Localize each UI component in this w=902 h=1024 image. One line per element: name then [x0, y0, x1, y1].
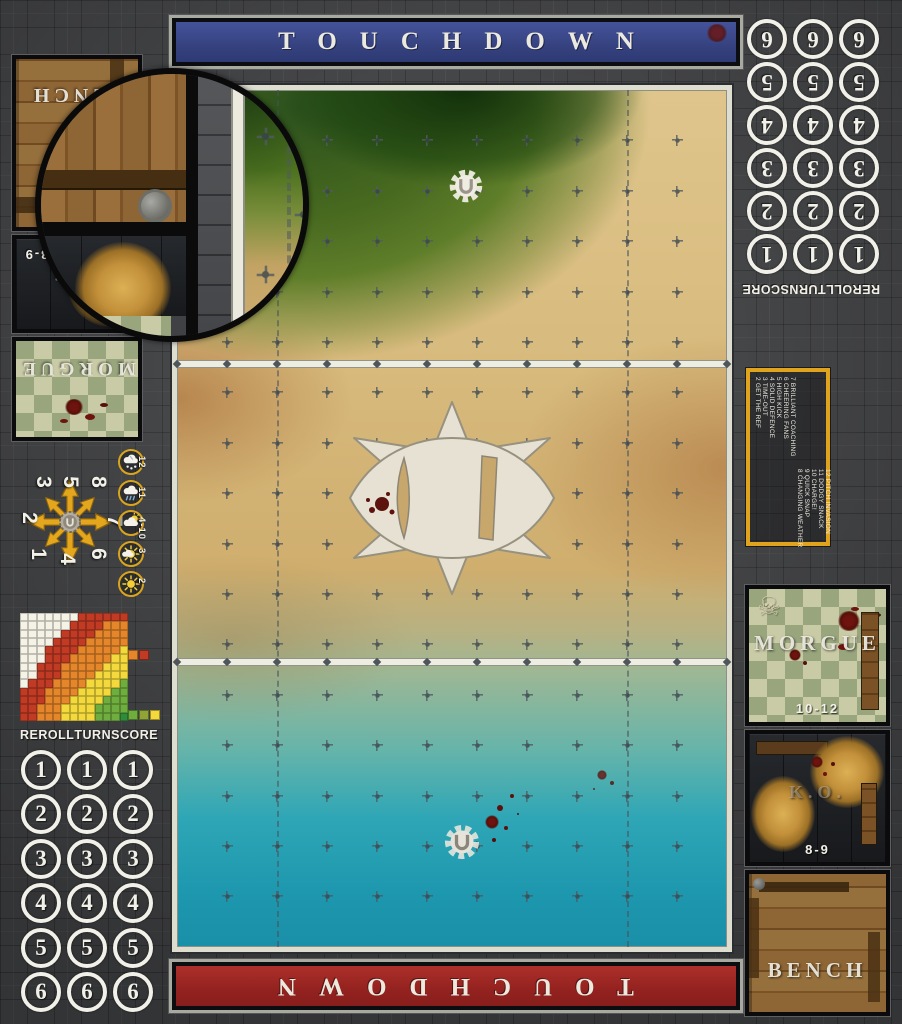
grid-cross-marker — [672, 135, 683, 146]
range-cell — [28, 679, 36, 687]
range-cell — [37, 713, 45, 721]
range-cell — [120, 663, 128, 671]
weather-row: 12 — [118, 449, 144, 475]
grid-cross-marker — [422, 690, 433, 701]
kickoff-entry: 4 SOLID DEFENCE — [768, 377, 775, 537]
line-diamond-marker — [473, 360, 481, 368]
range-cell — [37, 613, 45, 621]
range-cell — [20, 613, 28, 621]
range-cell — [78, 663, 86, 671]
range-cell — [86, 688, 94, 696]
range-cell — [111, 713, 119, 721]
score-track-left: REROLLTURNSCORE 111222333444555666 — [20, 728, 158, 1012]
grid-cross-marker — [372, 891, 383, 902]
kickoff-entry: 9 QUICK SNAP — [803, 377, 810, 537]
grid-cross-marker — [672, 639, 683, 650]
grid-cross-marker — [522, 337, 533, 348]
range-cell — [78, 696, 86, 704]
grid-cross-marker — [422, 791, 433, 802]
grid-cross-marker — [622, 287, 633, 298]
scatter-number: 8 — [86, 472, 110, 492]
range-cell — [111, 621, 119, 629]
track-number-circle: 5 — [67, 928, 107, 968]
track-number-circle: 2 — [839, 191, 879, 231]
range-cell — [53, 613, 61, 621]
grid-cross-marker — [522, 639, 533, 650]
range-cell — [78, 713, 86, 721]
grid-cross-marker — [272, 791, 283, 802]
track-number-circle: 4 — [21, 883, 61, 923]
grid-cross-marker — [372, 337, 383, 348]
kickoff-entry: 12 PITCH INVASION — [824, 377, 831, 537]
line-diamond-marker — [723, 658, 731, 666]
range-cell — [103, 663, 111, 671]
grid-cross-marker — [422, 841, 433, 852]
weather-row: 4-10 — [118, 510, 144, 536]
grid-cross-marker — [322, 791, 333, 802]
pitch-line-lower — [177, 658, 727, 666]
magnified-stone-border — [198, 74, 231, 342]
track-number-circle: 3 — [747, 148, 787, 188]
touchdown-banner-top-label: TOUCHDOWN — [255, 28, 657, 56]
range-cell — [103, 696, 111, 704]
range-cell — [28, 630, 36, 638]
range-cell — [53, 638, 61, 646]
track-number-circle: 1 — [21, 750, 61, 790]
grid-cross-marker — [372, 791, 383, 802]
range-cell — [37, 671, 45, 679]
gear-logo-icon — [440, 820, 484, 864]
range-cell — [28, 638, 36, 646]
range-cell — [111, 696, 119, 704]
range-cell — [95, 654, 103, 662]
weather-row: 3 — [118, 541, 144, 567]
scatter-number: 6 — [86, 544, 110, 564]
skeleton-icon: ☠ — [757, 591, 780, 622]
range-cell — [53, 621, 61, 629]
grid-cross-marker — [422, 891, 433, 902]
range-cell — [20, 704, 28, 712]
grid-cross-marker — [272, 337, 283, 348]
weather-value-label: 4-10 — [136, 517, 147, 540]
grid-cross-marker — [672, 841, 683, 852]
range-cell — [70, 696, 78, 704]
grid-cross-marker — [622, 438, 633, 449]
grid-cross-marker — [472, 287, 483, 298]
range-cell — [28, 713, 36, 721]
score-track-column-label: REROLL — [826, 282, 880, 296]
grid-cross-marker — [322, 337, 333, 348]
line-diamond-marker — [523, 658, 531, 666]
grid-cross-marker — [422, 740, 433, 751]
range-cell — [78, 671, 86, 679]
track-number-circle: 4 — [747, 105, 787, 145]
wide-zone-line-right — [627, 90, 629, 947]
line-diamond-marker — [723, 360, 731, 368]
grid-cross-marker — [672, 539, 683, 550]
range-cell — [28, 654, 36, 662]
range-cell — [20, 654, 28, 662]
range-cell — [95, 688, 103, 696]
grid-cross-marker — [222, 387, 233, 398]
range-cell — [45, 671, 53, 679]
grid-cross-marker — [472, 337, 483, 348]
track-number-circle: 6 — [747, 19, 787, 59]
range-cell — [20, 688, 28, 696]
grid-cross-marker — [222, 639, 233, 650]
grid-cross-marker — [222, 438, 233, 449]
grid-cross-marker — [672, 236, 683, 247]
track-number-circle: 2 — [67, 794, 107, 834]
range-cell — [78, 613, 86, 621]
magnifier-detail-circle — [35, 68, 309, 342]
grid-cross-marker — [622, 791, 633, 802]
range-cell — [95, 621, 103, 629]
range-cell — [78, 704, 86, 712]
range-cell — [28, 696, 36, 704]
range-cell — [53, 704, 61, 712]
grid-cross-marker — [422, 186, 433, 197]
grid-cross-marker — [472, 740, 483, 751]
grid-cross-marker — [372, 740, 383, 751]
range-cell — [45, 688, 53, 696]
touchdown-banner-bottom: TOUCHDOWN — [172, 962, 740, 1010]
score-track-left-grid: 111222333444555666 — [20, 750, 158, 1012]
grid-cross-marker — [372, 287, 383, 298]
score-track-right-grid: 111222333444555666 — [742, 12, 880, 274]
range-cell — [45, 713, 53, 721]
range-cell — [86, 613, 94, 621]
range-cell — [28, 646, 36, 654]
line-diamond-marker — [623, 360, 631, 368]
line-diamond-marker — [273, 658, 281, 666]
grid-cross-marker — [322, 589, 333, 600]
grid-cross-marker — [322, 891, 333, 902]
range-cell — [86, 621, 94, 629]
line-diamond-marker — [573, 360, 581, 368]
range-cell — [95, 663, 103, 671]
score-track-right: REROLLTURNSCORE 111222333444555666 — [742, 12, 880, 296]
grid-cross-marker — [372, 186, 383, 197]
range-cell — [86, 679, 94, 687]
range-cell — [78, 646, 86, 654]
grid-cross-marker — [522, 236, 533, 247]
line-diamond-marker — [173, 360, 181, 368]
ko-label: K.O. — [749, 782, 886, 803]
range-cell — [86, 696, 94, 704]
track-number-circle: 6 — [793, 19, 833, 59]
grid-cross-marker — [522, 690, 533, 701]
score-track-column-label: TURN — [74, 728, 111, 742]
range-cell — [111, 654, 119, 662]
range-cell — [53, 713, 61, 721]
grid-cross-marker — [472, 135, 483, 146]
grid-cross-marker — [322, 287, 333, 298]
grid-cross-marker — [422, 236, 433, 247]
grid-cross-marker — [572, 740, 583, 751]
grid-cross-marker — [272, 438, 283, 449]
weather-row: 2 — [118, 571, 144, 597]
range-cell — [45, 630, 53, 638]
grid-cross-marker — [572, 438, 583, 449]
blood-splatter — [706, 24, 728, 42]
track-number-circle: 1 — [839, 234, 879, 274]
kickoff-entry: 5 HIGH KICK — [775, 377, 782, 537]
scatter-number: 1 — [26, 544, 50, 564]
range-cell — [86, 654, 94, 662]
line-diamond-marker — [373, 658, 381, 666]
range-cell — [53, 654, 61, 662]
kickoff-entry: 11 DODGY SNACK — [817, 377, 824, 537]
legend-swatch — [128, 710, 138, 720]
legend-swatch — [128, 650, 138, 660]
track-number-circle: 5 — [839, 62, 879, 102]
grid-cross-marker — [222, 841, 233, 852]
range-cell — [61, 621, 69, 629]
kickoff-event-table: 2 GET THE REF3 TIME-OUT4 SOLID DEFENCE5 … — [746, 368, 830, 546]
range-cell — [53, 688, 61, 696]
grid-cross-marker — [472, 387, 483, 398]
range-cell — [111, 613, 119, 621]
track-number-circle: 3 — [21, 839, 61, 879]
range-cell — [20, 663, 28, 671]
line-diamond-marker — [623, 658, 631, 666]
grid-cross-marker — [622, 135, 633, 146]
range-cell — [61, 646, 69, 654]
range-cell — [70, 663, 78, 671]
range-cell — [61, 638, 69, 646]
grid-cross-marker — [272, 891, 283, 902]
blood-splatter — [597, 770, 607, 780]
range-cell — [37, 646, 45, 654]
grid-cross-marker — [522, 387, 533, 398]
scatter-number: 5 — [58, 472, 82, 492]
range-cell — [37, 630, 45, 638]
ko-range-label: 8-9 — [749, 842, 886, 857]
weather-value-label: 11 — [136, 487, 147, 499]
grid-cross-marker — [322, 236, 333, 247]
track-number-circle: 2 — [747, 191, 787, 231]
range-cell — [86, 646, 94, 654]
range-cell — [120, 621, 128, 629]
track-number-circle: 6 — [839, 19, 879, 59]
range-cell — [61, 679, 69, 687]
grid-cross-marker — [272, 488, 283, 499]
range-cell — [37, 638, 45, 646]
range-cell — [61, 663, 69, 671]
range-cell — [120, 630, 128, 638]
grid-cross-marker — [322, 387, 333, 398]
range-cell — [37, 654, 45, 662]
legend-swatch — [150, 710, 160, 720]
game-mat: TOUCHDOWN — [0, 0, 902, 1024]
range-cell — [20, 638, 28, 646]
weather-table: 12114-1032 — [118, 449, 164, 601]
grid-cross-marker — [672, 387, 683, 398]
range-cell — [95, 713, 103, 721]
range-cell — [70, 646, 78, 654]
range-cell — [70, 613, 78, 621]
grid-cross-marker — [672, 287, 683, 298]
range-cell — [78, 630, 86, 638]
range-cell — [53, 696, 61, 704]
line-diamond-marker — [673, 658, 681, 666]
line-diamond-marker — [673, 360, 681, 368]
grid-cross-marker — [222, 337, 233, 348]
range-cell — [120, 679, 128, 687]
grid-cross-marker — [272, 387, 283, 398]
range-cell — [78, 621, 86, 629]
scatter-number: 2 — [17, 508, 41, 528]
legend-swatch — [139, 710, 149, 720]
kickoff-entry: 8 CHANGING WEATHER — [796, 377, 803, 537]
dugout-bench-right: BENCH — [745, 870, 890, 1016]
range-cell — [111, 688, 119, 696]
grid-cross-marker — [522, 186, 533, 197]
track-number-circle: 5 — [793, 62, 833, 102]
grid-cross-marker — [572, 690, 583, 701]
grid-cross-marker — [222, 740, 233, 751]
grid-cross-marker — [622, 186, 633, 197]
grid-cross-marker — [422, 135, 433, 146]
range-cell — [78, 679, 86, 687]
range-cell — [95, 646, 103, 654]
range-cell — [103, 688, 111, 696]
range-cell — [70, 688, 78, 696]
grid-cross-marker — [322, 488, 333, 499]
range-cell — [120, 646, 128, 654]
grid-cross-marker — [372, 135, 383, 146]
range-cell — [45, 696, 53, 704]
range-cell — [37, 688, 45, 696]
range-cell — [61, 713, 69, 721]
track-number-circle: 5 — [113, 928, 153, 968]
grid-cross-marker — [672, 438, 683, 449]
grid-cross-marker — [572, 186, 583, 197]
grid-cross-marker — [372, 690, 383, 701]
line-diamond-marker — [173, 658, 181, 666]
range-chart-legend-top — [128, 650, 149, 660]
grid-cross-marker — [572, 337, 583, 348]
track-number-circle: 2 — [113, 794, 153, 834]
track-number-circle: 6 — [67, 972, 107, 1012]
score-track-right-labels: REROLLTURNSCORE — [742, 282, 880, 296]
grid-cross-marker — [622, 639, 633, 650]
grid-cross-marker — [622, 690, 633, 701]
grid-cross-marker — [572, 387, 583, 398]
range-cell — [61, 671, 69, 679]
touchdown-banner-bottom-label: TOUCHDOWN — [255, 972, 657, 1000]
dugout-morgue-right: ☠ MORGUE 10-12 — [745, 585, 890, 726]
range-cell — [28, 613, 36, 621]
touchdown-banner-top: TOUCHDOWN — [172, 18, 740, 66]
grid-cross-marker — [672, 740, 683, 751]
range-cell — [45, 654, 53, 662]
grid-cross-marker — [572, 236, 583, 247]
track-number-circle: 3 — [113, 839, 153, 879]
grid-cross-marker — [622, 589, 633, 600]
range-cell — [103, 704, 111, 712]
line-diamond-marker — [323, 658, 331, 666]
grid-cross-marker — [572, 891, 583, 902]
range-cell — [61, 630, 69, 638]
kickoff-entry: 2 GET THE REF — [754, 377, 761, 537]
bench-label: BENCH — [749, 958, 886, 983]
grid-cross-marker — [322, 438, 333, 449]
track-number-circle: 4 — [113, 883, 153, 923]
grid-cross-marker — [522, 287, 533, 298]
range-cell — [120, 688, 128, 696]
range-cell — [95, 630, 103, 638]
pass-range-chart — [20, 613, 128, 721]
gear-logo-icon — [445, 165, 487, 207]
dugout-morgue-left: MORGUE — [12, 337, 142, 441]
grid-cross-marker — [572, 841, 583, 852]
range-cell — [111, 704, 119, 712]
range-cell — [111, 630, 119, 638]
range-cell — [37, 704, 45, 712]
range-cell — [86, 671, 94, 679]
range-cell — [28, 663, 36, 671]
range-cell — [37, 621, 45, 629]
line-diamond-marker — [223, 658, 231, 666]
track-number-circle: 6 — [21, 972, 61, 1012]
range-cell — [70, 638, 78, 646]
grid-cross-marker — [222, 488, 233, 499]
legend-swatch — [139, 650, 149, 660]
range-cell — [111, 671, 119, 679]
grid-cross-marker — [672, 589, 683, 600]
grid-cross-marker — [372, 639, 383, 650]
range-cell — [120, 638, 128, 646]
grid-cross-marker — [272, 639, 283, 650]
range-cell — [20, 671, 28, 679]
range-cell — [103, 713, 111, 721]
range-cell — [37, 663, 45, 671]
grid-cross-marker — [272, 589, 283, 600]
kickoff-entry: 6 CHEERING FANS — [782, 377, 789, 537]
range-cell — [95, 704, 103, 712]
range-cell — [37, 696, 45, 704]
range-cell — [120, 704, 128, 712]
grid-cross-marker — [622, 488, 633, 499]
range-cell — [111, 646, 119, 654]
kickoff-entry: 7 BRILLIANT COACHING — [789, 377, 796, 537]
range-cell — [86, 630, 94, 638]
range-cell — [45, 663, 53, 671]
weather-value-label: 12 — [136, 456, 147, 469]
grid-cross-marker — [572, 639, 583, 650]
track-number-circle: 2 — [21, 794, 61, 834]
track-number-circle: 5 — [747, 62, 787, 102]
grid-cross-marker — [322, 841, 333, 852]
range-cell — [95, 613, 103, 621]
weather-value-label: 2 — [136, 578, 147, 584]
range-cell — [120, 613, 128, 621]
range-cell — [45, 679, 53, 687]
grid-cross-marker — [672, 791, 683, 802]
range-cell — [95, 671, 103, 679]
range-cell — [111, 638, 119, 646]
dugout-ko-right: K.O. 8-9 — [745, 730, 890, 866]
weather-row: 11 — [118, 480, 144, 506]
grid-cross-marker — [572, 539, 583, 550]
grid-cross-marker — [522, 891, 533, 902]
magnified-metal-disc — [141, 192, 169, 220]
grid-cross-marker — [372, 387, 383, 398]
grid-cross-marker — [272, 539, 283, 550]
kickoff-event-list: 2 GET THE REF3 TIME-OUT4 SOLID DEFENCE5 … — [754, 377, 822, 537]
